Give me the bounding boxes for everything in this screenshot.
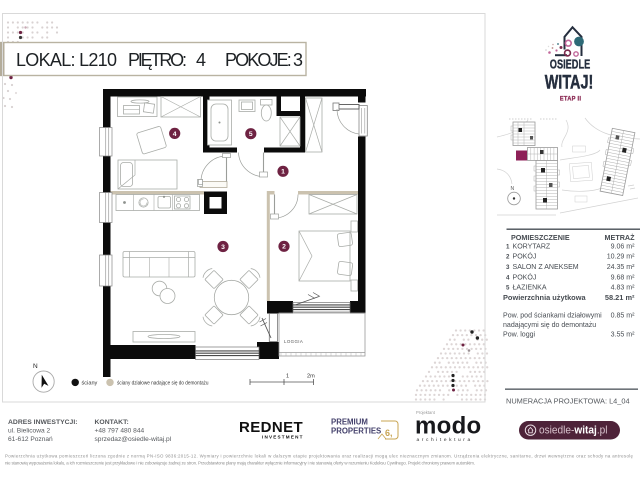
svg-text:OSIEDLE: OSIEDLE <box>550 58 590 72</box>
svg-text:ul. Bielicowa 2: ul. Bielicowa 2 <box>8 427 50 434</box>
svg-text:1: 1 <box>506 243 510 250</box>
svg-text:KONTAKT:: KONTAKT: <box>95 419 129 426</box>
svg-text:+48 797 480 844: +48 797 480 844 <box>95 427 145 434</box>
svg-text:9.06 m²: 9.06 m² <box>611 243 636 250</box>
svg-text:KORYTARZ: KORYTARZ <box>513 243 551 250</box>
svg-text:24.35 m²: 24.35 m² <box>607 264 635 271</box>
svg-text:61-612 Poznań: 61-612 Poznań <box>8 436 53 443</box>
svg-text:LOGGIA: LOGGIA <box>284 339 303 344</box>
svg-text:REDNET: REDNET <box>239 419 303 436</box>
svg-text:PREMIUM: PREMIUM <box>331 417 368 426</box>
svg-text:58.21 m²: 58.21 m² <box>605 293 635 302</box>
svg-text:ściany działowe nadające się d: ściany działowe nadające się do demontaż… <box>117 380 209 386</box>
svg-text:N: N <box>33 363 38 370</box>
svg-text:2m: 2m <box>307 374 315 380</box>
svg-text:1: 1 <box>281 169 285 176</box>
svg-text:LOKAL: L210: LOKAL: L210 <box>16 50 117 70</box>
svg-text:METRAŻ: METRAŻ <box>605 233 636 242</box>
svg-text:PROPERTIES: PROPERTIES <box>331 426 381 435</box>
svg-text:3: 3 <box>221 244 225 251</box>
svg-text:2: 2 <box>282 244 286 251</box>
svg-text:Powierzchnia użytkowa: Powierzchnia użytkowa <box>503 293 586 302</box>
svg-text:2: 2 <box>506 254 510 261</box>
svg-text:Pow. pod ściankami działowymi: Pow. pod ściankami działowymi <box>503 312 602 319</box>
svg-text:WITAJ!: WITAJ! <box>545 72 594 93</box>
svg-text:5: 5 <box>249 131 253 138</box>
svg-text:Powierzchnia użytkowa pomieszc: Powierzchnia użytkowa pomieszczeń liczon… <box>5 454 634 459</box>
svg-text:6,: 6, <box>385 428 393 438</box>
svg-text:ŁAZIENKA: ŁAZIENKA <box>513 285 547 292</box>
svg-text:ADRES INWESTYCJI:: ADRES INWESTYCJI: <box>8 419 78 426</box>
svg-text:INVESTMENT: INVESTMENT <box>262 435 304 440</box>
svg-text:POKOJE: 3: POKOJE: 3 <box>225 50 303 70</box>
svg-text:1: 1 <box>286 374 289 380</box>
svg-text:4.83 m²: 4.83 m² <box>611 285 636 292</box>
svg-text:NUMERACJA PROJEKTOWA: L4_04: NUMERACJA PROJEKTOWA: L4_04 <box>506 397 630 406</box>
svg-text:ściany: ściany <box>82 381 98 387</box>
svg-text:PIĘTRO:: PIĘTRO: <box>128 50 187 70</box>
svg-text:N: N <box>511 186 515 192</box>
svg-text:10.29 m²: 10.29 m² <box>607 254 635 261</box>
svg-text:5: 5 <box>506 285 510 292</box>
svg-text:POKÓJ: POKÓJ <box>513 272 537 281</box>
svg-text:3: 3 <box>506 264 510 271</box>
svg-text:3.55 m²: 3.55 m² <box>611 332 636 339</box>
svg-text:0.85 m²: 0.85 m² <box>611 312 636 319</box>
svg-text:POMIESZCZENIE: POMIESZCZENIE <box>511 233 570 242</box>
svg-text:SALON Z ANEKSEM: SALON Z ANEKSEM <box>513 264 579 271</box>
svg-text:sprzedaz@osiedle-witaj.pl: sprzedaz@osiedle-witaj.pl <box>95 436 172 443</box>
svg-text:4: 4 <box>173 131 177 138</box>
svg-text:POKÓJ: POKÓJ <box>513 252 537 261</box>
svg-text:nie stanowią wyposażenia lokal: nie stanowią wyposażenia lokalu, a ich r… <box>5 461 475 466</box>
svg-text:architektura: architektura <box>417 437 473 443</box>
svg-text:osiedle-witaj.pl: osiedle-witaj.pl <box>539 424 607 436</box>
svg-text:4: 4 <box>506 274 510 281</box>
svg-text:Pow. loggi: Pow. loggi <box>503 332 536 339</box>
svg-text:nadającymi się do demontażu: nadającymi się do demontażu <box>503 322 596 329</box>
svg-text:modo: modo <box>415 413 482 440</box>
svg-text:9.68 m²: 9.68 m² <box>611 274 636 281</box>
svg-text:4: 4 <box>196 50 206 70</box>
svg-text:ETAP II: ETAP II <box>560 95 581 103</box>
